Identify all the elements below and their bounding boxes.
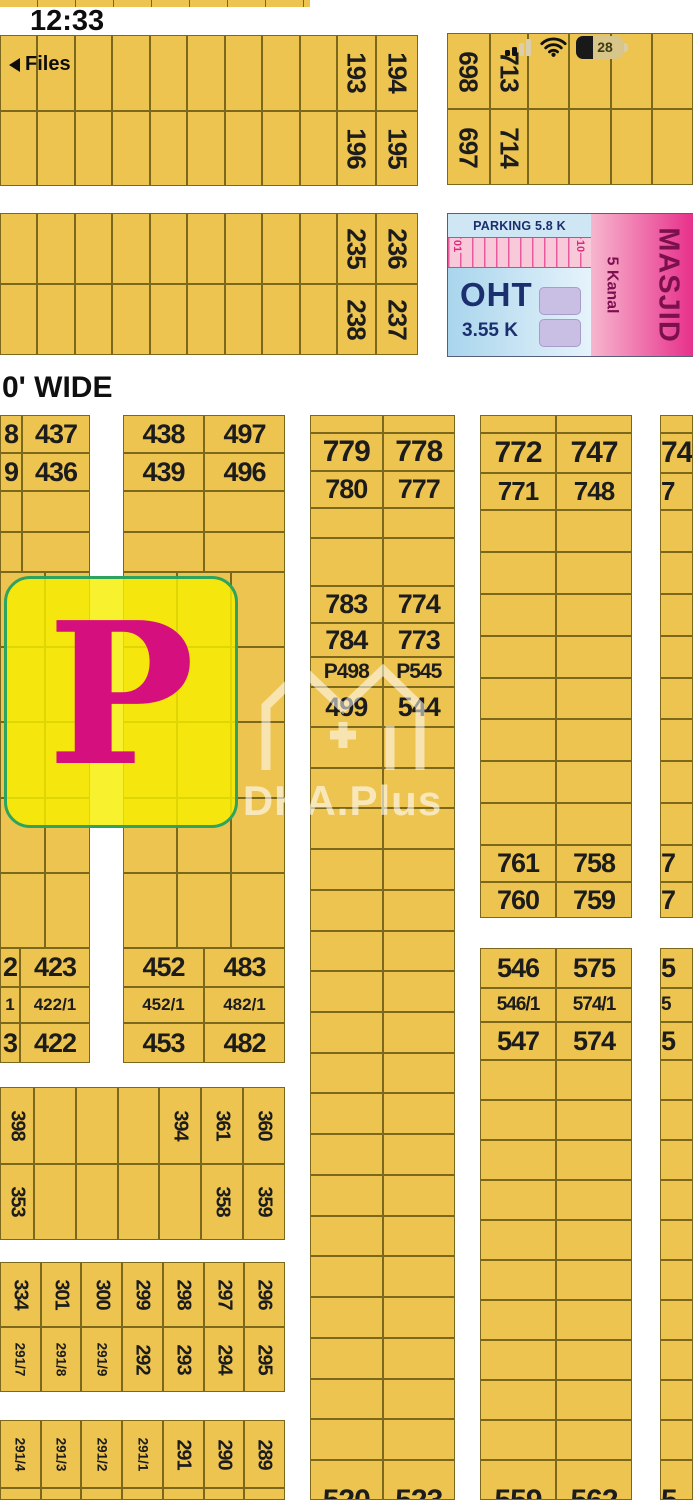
plot-number: 544 — [398, 692, 440, 723]
plot-cell: 237 — [376, 284, 418, 355]
plot-cell: 779 — [310, 433, 383, 471]
plot-cell — [480, 1180, 556, 1220]
plot-cell — [310, 1379, 383, 1420]
plot-cell — [262, 111, 299, 187]
plot-cell — [660, 636, 693, 678]
plot-number: 193 — [341, 53, 372, 93]
plot-cell: 299 — [122, 1262, 163, 1327]
battery-level: 28 — [597, 39, 613, 55]
plot-number: 7 — [661, 885, 675, 916]
plot-cell — [480, 1380, 556, 1420]
plot-cell: P545 — [383, 657, 456, 687]
plot-cell: 422 — [20, 1023, 90, 1063]
plot-number: 2 — [3, 952, 17, 983]
plot-cell: 483 — [204, 948, 285, 987]
plot-cell — [300, 284, 337, 355]
plot-number: 294 — [212, 1344, 235, 1374]
plot-number: 291/8 — [54, 1343, 69, 1377]
plot-cell: 698 — [447, 33, 490, 109]
plot-cell — [480, 1420, 556, 1460]
plot-cell — [37, 213, 74, 284]
plot-cell — [652, 109, 693, 185]
plot-cell: 777 — [383, 471, 456, 508]
plot-cell — [118, 1164, 160, 1241]
stall-number-first: 01 — [451, 239, 463, 253]
plot-cell: 497 — [204, 415, 285, 453]
plot-number: 237 — [381, 299, 412, 339]
plot-cell: 760 — [480, 882, 556, 918]
road-width-label: 0' WIDE — [2, 371, 112, 405]
plot-cell — [34, 1087, 76, 1164]
plot-number: 714 — [494, 127, 525, 167]
plot-cell — [660, 1420, 693, 1460]
plot-cell: 74 — [660, 433, 693, 473]
plot-cell: 294 — [204, 1327, 245, 1392]
plot-cell — [556, 719, 632, 761]
plot-number: 423 — [34, 952, 76, 983]
plot-cell — [310, 808, 383, 849]
plot-cell: P498 — [310, 657, 383, 687]
plot-cell — [556, 1180, 632, 1220]
plot-cell — [225, 284, 262, 355]
plot-cell — [310, 1012, 383, 1053]
plot-cell: 334 — [0, 1262, 41, 1327]
plot-cell: 290 — [204, 1420, 245, 1488]
plot-number: 452/1 — [142, 995, 185, 1015]
plot-cell: 575 — [556, 948, 632, 988]
plot-number: 7 — [661, 476, 674, 507]
west-lower-b: 452 483 452/1 482/1 453 482 — [123, 948, 285, 1063]
plot-cell: 778 — [383, 433, 456, 471]
plot-number: 575 — [573, 953, 615, 984]
plot-cell: 7 — [660, 882, 693, 918]
plot-number: 297 — [212, 1279, 235, 1309]
plot-cell: 301 — [41, 1262, 82, 1327]
plot-cell — [383, 931, 456, 972]
plot-cell — [231, 722, 285, 797]
plot-cell — [300, 111, 337, 187]
plot-cell: 2 — [0, 948, 20, 987]
plot-cell — [112, 284, 149, 355]
plot-cell: 291/1 — [122, 1420, 163, 1488]
east-block-top: 772 747 771 748 761 758 760 759 — [480, 415, 632, 918]
plot-cell — [660, 678, 693, 720]
plot-number: 5 — [661, 1026, 675, 1057]
plot-cell — [480, 719, 556, 761]
plot-number: 195 — [381, 128, 412, 168]
plot-cell: 359 — [243, 1164, 285, 1241]
plot-number: 761 — [497, 848, 539, 879]
plot-cell — [569, 109, 610, 185]
plot-cell: 8 — [0, 415, 22, 453]
plot-cell — [262, 35, 299, 111]
plot-cell — [310, 1053, 383, 1094]
plot-cell — [660, 1300, 693, 1340]
plot-cell: 697 — [447, 109, 490, 185]
plot-cell: 452 — [123, 948, 204, 987]
plot-cell — [204, 532, 285, 573]
status-icons: 28 — [505, 34, 665, 60]
plot-cell — [383, 808, 456, 849]
plot-cell: 193 — [337, 35, 376, 111]
plot-cell: 499 — [310, 687, 383, 727]
plot-cell — [556, 1220, 632, 1260]
plot-cell: 291 — [163, 1420, 204, 1488]
plot-cell — [0, 1488, 41, 1500]
plot-cell: 784 — [310, 623, 383, 657]
plot-cell — [262, 284, 299, 355]
plot-cell — [81, 1488, 122, 1500]
plot-number: 359 — [253, 1187, 276, 1217]
plot-cell — [231, 873, 285, 948]
plot-number: 289 — [253, 1439, 276, 1469]
plot-cell — [310, 1093, 383, 1134]
plot-cell — [163, 1488, 204, 1500]
plot-cell — [660, 1340, 693, 1380]
plot-number: 747 — [570, 436, 617, 470]
plot-number: 5 — [661, 994, 671, 1016]
plot-cell: 714 — [490, 109, 528, 185]
plot-cell — [123, 491, 204, 532]
plot-cell — [480, 1260, 556, 1300]
plot-number: 361 — [211, 1110, 234, 1140]
plot-cell — [660, 552, 693, 594]
plot-number: 439 — [142, 457, 184, 488]
plot-number: 7 — [661, 848, 675, 879]
back-button[interactable]: Files — [9, 53, 71, 76]
plot-number: 353 — [6, 1187, 29, 1217]
plot-cell — [383, 1379, 456, 1420]
plot-number: 438 — [142, 419, 184, 450]
plot-cell — [383, 890, 456, 931]
plot-number: 482/1 — [223, 995, 266, 1015]
masjid-area: 5 Kanal — [602, 257, 620, 314]
plot-cell — [383, 508, 456, 538]
plot-cell — [310, 508, 383, 538]
plot-cell: 520 — [310, 1460, 383, 1500]
plot-number: 293 — [172, 1344, 195, 1374]
plot-cell — [187, 35, 224, 111]
plot-cell: 546 — [480, 948, 556, 988]
plot-cell: 574/1 — [556, 988, 632, 1022]
plot-cell — [76, 1164, 118, 1241]
plot-number: 784 — [325, 625, 367, 656]
plot-cell: 291/8 — [41, 1327, 82, 1392]
plot-number: 290 — [212, 1439, 235, 1469]
plot-cell — [159, 1164, 201, 1241]
plot-cell: 292 — [122, 1327, 163, 1392]
plot-cell — [310, 415, 383, 433]
plot-cell — [0, 213, 37, 284]
plot-cell: 562 — [556, 1460, 632, 1500]
plot-number: 194 — [381, 53, 412, 93]
plot-cell: 196 — [337, 111, 376, 187]
plot-number: 562 — [570, 1484, 617, 1500]
plot-cell — [310, 1419, 383, 1460]
plot-cell — [76, 1087, 118, 1164]
plot-cell — [556, 1060, 632, 1100]
plot-number: 783 — [325, 589, 367, 620]
band-296: 334 301 300 299 298 297 296 291/7 291/8 … — [0, 1262, 285, 1392]
stall-number-last: 10 — [574, 239, 586, 253]
plot-number: 334 — [9, 1279, 32, 1309]
parking-oht-block: PARKING 5.8 K 01 10 OHT 3.55 K — [448, 214, 591, 356]
plot-number: 236 — [381, 228, 412, 268]
plot-map-screen: { "status_bar": {"time":"12:33","back":"… — [0, 0, 693, 1500]
plot-number: 773 — [398, 625, 440, 656]
plot-cell — [556, 678, 632, 720]
plot-number: 422/1 — [34, 995, 77, 1015]
plot-cell — [660, 1380, 693, 1420]
plot-cell: 423 — [20, 948, 90, 987]
plot-number: 547 — [497, 1026, 539, 1057]
plot-cell — [383, 1256, 456, 1297]
plot-number: 3 — [3, 1028, 17, 1059]
plot-number: 523 — [395, 1484, 442, 1500]
plot-number: 452 — [142, 952, 184, 983]
plot-cell — [660, 1220, 693, 1260]
plot-cell: 7 — [660, 845, 693, 882]
plot-number: 780 — [325, 474, 367, 505]
plot-cell — [187, 111, 224, 187]
plot-number: 358 — [211, 1187, 234, 1217]
plot-cell — [310, 890, 383, 931]
plot-number: 778 — [395, 435, 442, 469]
plot-cell — [556, 1300, 632, 1340]
plot-cell — [660, 1260, 693, 1300]
masjid-label: MASJID — [652, 227, 685, 343]
plot-cell — [556, 1140, 632, 1180]
plot-cell: 361 — [201, 1087, 243, 1164]
plot-cell: 298 — [163, 1262, 204, 1327]
plot-number: 436 — [35, 457, 77, 488]
plot-number: 698 — [453, 51, 484, 91]
plot-cell — [0, 532, 22, 573]
plot-number: 748 — [574, 476, 614, 507]
plot-cell — [225, 111, 262, 187]
plot-number: 422 — [34, 1028, 76, 1059]
plot-cell — [480, 1100, 556, 1140]
plot-number: P545 — [396, 660, 441, 684]
plot-cell: 295 — [244, 1327, 285, 1392]
plot-cell — [310, 727, 383, 768]
plot-cell: 291/9 — [81, 1327, 122, 1392]
west-lower-a: 2 423 1 422/1 3 422 — [0, 948, 90, 1063]
plot-cell — [528, 109, 569, 185]
plot-cell — [660, 1100, 693, 1140]
plot-cell: 291/7 — [0, 1327, 41, 1392]
plot-number: 291/4 — [13, 1437, 28, 1471]
plot-number: 482 — [223, 1028, 265, 1059]
plot-number: 74 — [661, 436, 692, 470]
plot-number: 291/7 — [13, 1343, 28, 1377]
plot-cell: 758 — [556, 845, 632, 882]
plot-number: 398 — [6, 1110, 29, 1140]
plot-cell — [383, 1053, 456, 1094]
plot-cell — [383, 1297, 456, 1338]
plot-cell — [231, 647, 285, 722]
plot-cell — [310, 1256, 383, 1297]
plot-number: 9 — [4, 457, 18, 488]
plot-cell — [0, 111, 37, 187]
plot-cell — [556, 552, 632, 594]
wifi-icon — [540, 37, 567, 57]
plot-cell: 759 — [556, 882, 632, 918]
plot-cell — [0, 873, 45, 948]
plot-cell — [187, 213, 224, 284]
park-block: P — [4, 576, 238, 828]
plot-cell — [383, 538, 456, 586]
plot-number: 499 — [325, 692, 367, 723]
plot-cell — [556, 594, 632, 636]
plot-cell: 761 — [480, 845, 556, 882]
plot-number: 774 — [398, 589, 440, 620]
plot-cell: 780 — [310, 471, 383, 508]
plot-cell — [383, 1175, 456, 1216]
plot-number: P498 — [324, 660, 369, 684]
plot-cell — [177, 873, 231, 948]
plot-number: 574 — [573, 1026, 615, 1057]
plot-number: 360 — [253, 1110, 276, 1140]
plot-cell: 235 — [337, 213, 376, 284]
edge-block-top: 74 7 7 7 — [660, 415, 693, 918]
plot-cell — [150, 213, 187, 284]
plot-cell — [204, 491, 285, 532]
plot-cell — [0, 284, 37, 355]
plot-cell — [660, 719, 693, 761]
plot-number: 759 — [573, 885, 615, 916]
plot-cell: 296 — [244, 1262, 285, 1327]
plot-cell: 195 — [376, 111, 418, 187]
plot-cell — [660, 761, 693, 803]
plot-number: 299 — [131, 1279, 154, 1309]
plot-cell: 438 — [123, 415, 204, 453]
plot-number: 546/1 — [497, 994, 540, 1016]
plot-cell — [383, 1419, 456, 1460]
plot-cell: 5 — [660, 1460, 693, 1500]
plot-cell: 5 — [660, 948, 693, 988]
plot-cell — [480, 1060, 556, 1100]
plot-cell — [556, 1340, 632, 1380]
plot-number: 771 — [498, 476, 538, 507]
plot-number: 196 — [341, 128, 372, 168]
plot-cell — [187, 284, 224, 355]
plot-cell — [611, 109, 652, 185]
plot-cell — [480, 803, 556, 845]
plot-cell — [660, 1060, 693, 1100]
plot-cell — [75, 284, 112, 355]
plot-cell — [231, 572, 285, 647]
plot-cell — [480, 761, 556, 803]
plot-number: 760 — [497, 885, 539, 916]
plot-cell: 482/1 — [204, 987, 285, 1023]
plot-number: 574/1 — [573, 994, 616, 1016]
plot-number: 546 — [497, 953, 539, 984]
plot-cell: 394 — [159, 1087, 201, 1164]
plot-cell — [123, 532, 204, 573]
plot-cell — [310, 538, 383, 586]
plot-number: 8 — [4, 419, 18, 450]
plot-cell — [660, 1140, 693, 1180]
plot-cell: 353 — [0, 1164, 34, 1241]
plot-cell: 437 — [22, 415, 90, 453]
plot-cell: 772 — [480, 433, 556, 473]
plot-number: 291/1 — [135, 1437, 150, 1471]
plot-number: 779 — [323, 435, 370, 469]
parking-label: PARKING 5.8 K — [448, 214, 591, 238]
plot-cell — [37, 284, 74, 355]
plot-cell: 783 — [310, 586, 383, 623]
plot-cell: 358 — [201, 1164, 243, 1241]
plot-cell: 482 — [204, 1023, 285, 1063]
plot-cell — [262, 213, 299, 284]
east-block-bottom: 546 575 546/1 574/1 547 574 559 562 — [480, 948, 632, 1500]
plot-cell: 7 — [660, 473, 693, 510]
plot-cell — [383, 1093, 456, 1134]
plot-cell: 422/1 — [20, 987, 90, 1023]
plot-cell: 439 — [123, 453, 204, 491]
plot-cell — [383, 768, 456, 809]
plot-cell — [310, 1216, 383, 1257]
plot-number: 483 — [223, 952, 265, 983]
plot-number: 295 — [253, 1344, 276, 1374]
plot-number: 437 — [35, 419, 77, 450]
west-upper-a: 8 437 9 436 — [0, 415, 90, 572]
plot-number: 5 — [661, 953, 675, 984]
plot-cell — [22, 532, 90, 573]
plot-cell — [480, 1220, 556, 1260]
plot-cell: 360 — [243, 1087, 285, 1164]
plot-cell — [480, 510, 556, 552]
plot-cell — [0, 491, 22, 532]
plot-cell — [112, 111, 149, 187]
plot-cell — [660, 1180, 693, 1220]
plot-number: 291/2 — [94, 1437, 109, 1471]
plot-cell: 9 — [0, 453, 22, 491]
plot-cell — [660, 510, 693, 552]
plot-cell: 747 — [556, 433, 632, 473]
plot-cell — [45, 873, 90, 948]
plot-cell — [556, 510, 632, 552]
plot-cell — [150, 111, 187, 187]
oht-area: 3.55 K — [462, 320, 518, 342]
plot-number: 697 — [453, 127, 484, 167]
plot-cell — [225, 213, 262, 284]
plot-cell — [112, 35, 149, 111]
plot-cell: 774 — [383, 586, 456, 623]
plot-cell — [660, 803, 693, 845]
facility-block: PARKING 5.8 K 01 10 OHT 3.55 K MASJID 5 … — [447, 213, 693, 357]
plot-cell: 453 — [123, 1023, 204, 1063]
back-chevron-icon — [9, 58, 20, 72]
plot-cell — [556, 803, 632, 845]
plot-cell — [118, 1087, 160, 1164]
plot-cell — [480, 552, 556, 594]
plot-cell — [660, 415, 693, 433]
plot-cell — [123, 873, 177, 948]
plot-cell — [75, 213, 112, 284]
plot-cell — [480, 1300, 556, 1340]
plot-cell — [660, 594, 693, 636]
plot-number: 291/3 — [54, 1437, 69, 1471]
band-289: 291/4 291/3 291/2 291/1 291 290 289 — [0, 1420, 285, 1500]
plot-number: 1 — [5, 995, 14, 1015]
plot-cell — [383, 971, 456, 1012]
plot-cell — [383, 849, 456, 890]
plot-cell — [150, 284, 187, 355]
plot-cell — [383, 1338, 456, 1379]
plot-cell — [310, 1175, 383, 1216]
